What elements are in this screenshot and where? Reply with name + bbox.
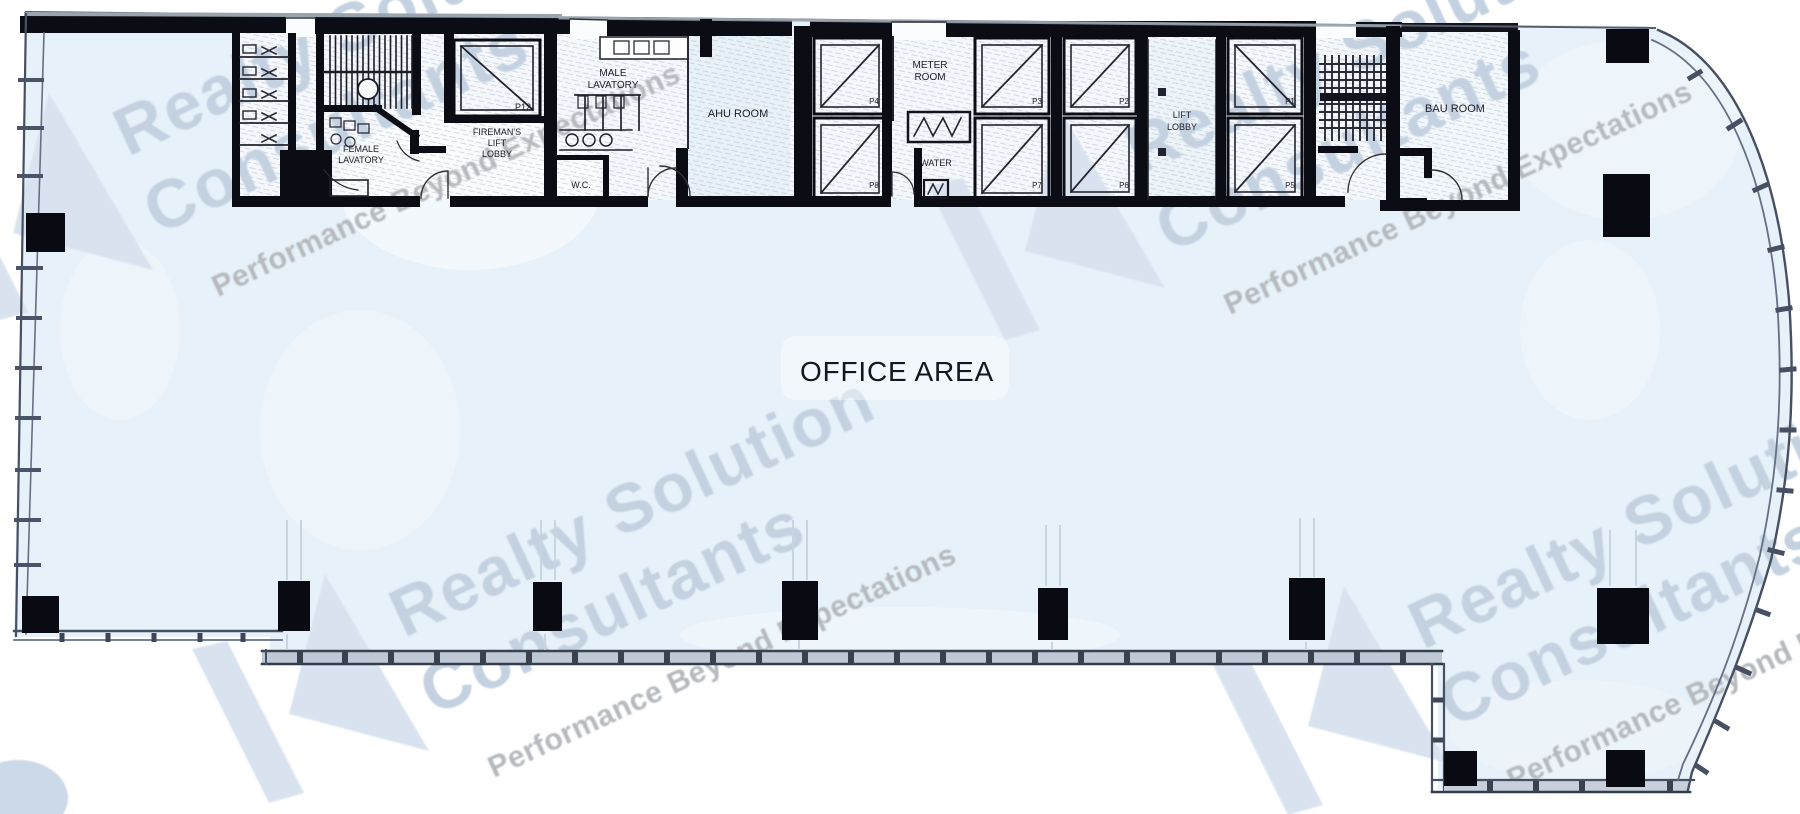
svg-text:LAVATORY: LAVATORY <box>338 155 384 165</box>
svg-text:FIREMAN'S: FIREMAN'S <box>473 127 521 137</box>
svg-text:MALE: MALE <box>599 68 627 79</box>
svg-text:P7: P7 <box>1032 181 1042 190</box>
svg-text:WATER: WATER <box>920 158 952 168</box>
svg-text:LOBBY: LOBBY <box>482 149 512 159</box>
svg-text:P1: P1 <box>1285 97 1295 106</box>
svg-text:FEMALE: FEMALE <box>343 144 379 154</box>
svg-text:P6: P6 <box>1119 181 1129 190</box>
svg-text:ROOM: ROOM <box>914 72 945 83</box>
svg-text:P3: P3 <box>1032 97 1042 106</box>
svg-text:LAVATORY: LAVATORY <box>588 80 639 91</box>
svg-text:OFFICE AREA: OFFICE AREA <box>800 356 994 387</box>
svg-text:LIFT: LIFT <box>488 138 507 148</box>
svg-text:P12: P12 <box>515 102 531 112</box>
svg-text:P8: P8 <box>869 181 879 190</box>
svg-text:P5: P5 <box>1285 181 1295 190</box>
svg-text:LOBBY: LOBBY <box>1167 122 1197 132</box>
svg-text:LIFT: LIFT <box>1173 110 1192 120</box>
svg-text:BAU ROOM: BAU ROOM <box>1425 103 1485 115</box>
svg-text:W.C.: W.C. <box>571 180 591 190</box>
svg-text:P4: P4 <box>869 97 879 106</box>
svg-text:P2: P2 <box>1119 97 1129 106</box>
svg-text:AHU ROOM: AHU ROOM <box>708 108 769 120</box>
svg-text:METER: METER <box>913 60 948 71</box>
